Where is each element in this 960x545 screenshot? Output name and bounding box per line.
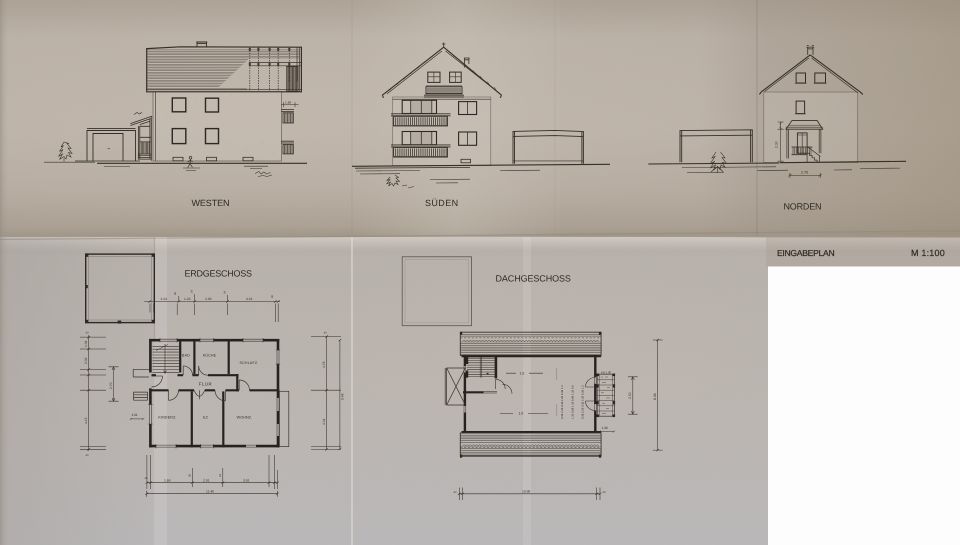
svg-text:2.70: 2.70: [801, 170, 808, 174]
svg-text:2.24: 2.24: [161, 297, 168, 301]
svg-text:1.28: 1.28: [184, 297, 191, 301]
svg-text:4.34: 4.34: [322, 418, 326, 425]
svg-text:NORDEN: NORDEN: [784, 202, 822, 212]
svg-text:1.01: 1.01: [132, 413, 138, 417]
svg-text:10.88: 10.88: [522, 490, 530, 494]
svg-text:KINDERZ.: KINDERZ.: [158, 416, 176, 420]
svg-text:KN 1.00: KN 1.00: [601, 371, 612, 375]
svg-text:SÜDEN: SÜDEN: [425, 198, 459, 208]
svg-text:1.35 0.89 1.35 0.89 1.35 0.8: 1.35 0.89 1.35 0.89 1.35 0.8: [571, 385, 574, 419]
svg-text:1.39: 1.39: [602, 426, 608, 430]
svg-text:0.38 2.26 0.38 2.26 0.38 1.3: 0.38 2.26 0.38 2.26 0.38 1.3: [561, 385, 564, 419]
svg-text:11.48: 11.48: [206, 489, 214, 493]
svg-text:WESTEN: WESTEN: [192, 198, 230, 208]
svg-text:2.91: 2.91: [203, 478, 210, 482]
svg-text:1.68: 1.68: [164, 478, 171, 482]
svg-text:2.88: 2.88: [205, 297, 212, 301]
svg-text:0.38 2.26 0.38 2.26 0.38 1.3: 0.38 2.26 0.38 2.26 0.38 1.3: [582, 385, 585, 419]
svg-text:1.04: 1.04: [84, 340, 88, 347]
svg-text:4.15: 4.15: [84, 417, 88, 424]
svg-text:M 1:100: M 1:100: [911, 248, 945, 258]
svg-text:3.91: 3.91: [243, 478, 250, 482]
svg-text:EZ: EZ: [203, 416, 209, 420]
svg-text:4.76: 4.76: [322, 361, 326, 368]
svg-text:BAD: BAD: [182, 354, 190, 358]
svg-text:SCHLAFZ.: SCHLAFZ.: [240, 361, 259, 365]
svg-text:1.38: 1.38: [285, 100, 291, 104]
svg-text:ERDGESCHOSS: ERDGESCHOSS: [185, 269, 253, 279]
svg-text:1.0: 1.0: [519, 412, 524, 416]
svg-text:2.30: 2.30: [775, 141, 779, 148]
svg-text:4.01: 4.01: [246, 297, 253, 301]
svg-text:9.48: 9.48: [340, 393, 344, 400]
svg-text:DACHGESCHOSS: DACHGESCHOSS: [496, 274, 571, 284]
svg-text:8.36: 8.36: [653, 393, 657, 400]
svg-text:1.0: 1.0: [520, 371, 525, 375]
svg-text:2.70: 2.70: [109, 382, 113, 389]
svg-text:FLUR: FLUR: [199, 382, 212, 387]
svg-text:2.50: 2.50: [628, 392, 632, 399]
svg-text:2.02: 2.02: [84, 357, 88, 364]
svg-text:EINGABEPLAN: EINGABEPLAN: [777, 248, 834, 258]
svg-text:WOHNZ.: WOHNZ.: [237, 416, 253, 420]
svg-text:KÜCHE: KÜCHE: [203, 354, 217, 358]
